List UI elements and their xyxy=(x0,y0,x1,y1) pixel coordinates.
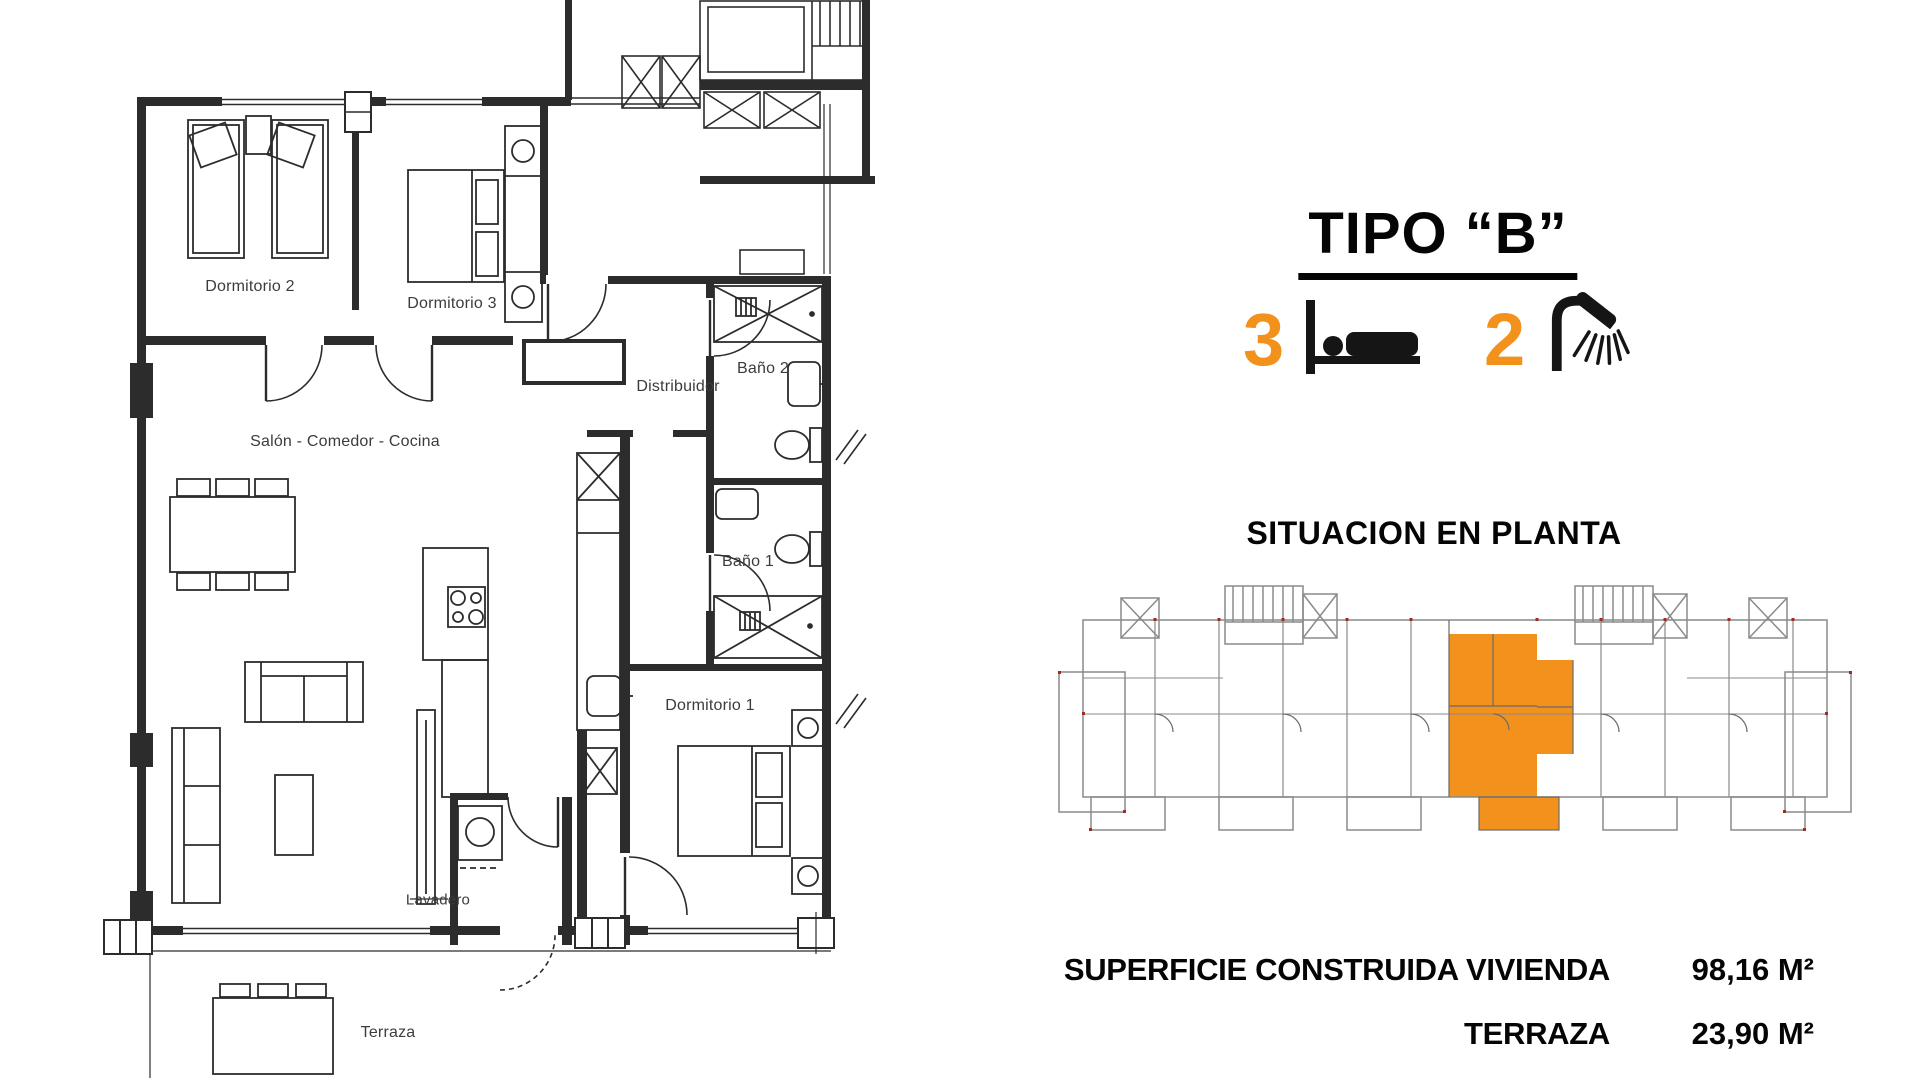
bedrooms-count: 3 xyxy=(1243,303,1284,377)
area-value: 98,16 M² xyxy=(1692,952,1814,988)
area-label: SUPERFICIE CONSTRUIDA VIVIENDA xyxy=(1064,952,1610,988)
floor-plan: Dormitorio 2 Dormitorio 3 Distribuidor B… xyxy=(0,0,960,1080)
situation-plan xyxy=(1055,582,1855,840)
room-label-bano-2: Baño 2 xyxy=(737,360,789,378)
floor-plan-drawing xyxy=(0,0,960,1080)
room-label-distribuidor: Distribuidor xyxy=(636,378,719,396)
info-panel: TIPO “B” 3 2 xyxy=(960,0,1920,1080)
room-label-dormitorio-2: Dormitorio 2 xyxy=(205,278,295,296)
bed-icon xyxy=(1306,300,1420,374)
room-label-terraza: Terraza xyxy=(361,1024,416,1042)
shower-icon xyxy=(1548,288,1630,372)
area-row-terraza: TERRAZA 23,90 M² xyxy=(960,1016,1920,1056)
area-value: 23,90 M² xyxy=(1692,1016,1814,1052)
situation-heading: SITUACION EN PLANTA xyxy=(1246,515,1621,552)
plan-type-title: TIPO “B” xyxy=(1298,200,1577,280)
room-label-dormitorio-3: Dormitorio 3 xyxy=(407,295,497,313)
room-label-dormitorio-1: Dormitorio 1 xyxy=(665,697,755,715)
area-row-vivienda: SUPERFICIE CONSTRUIDA VIVIENDA 98,16 M² xyxy=(960,952,1920,992)
plan-sheet: Dormitorio 2 Dormitorio 3 Distribuidor B… xyxy=(0,0,1920,1080)
room-label-bano-1: Baño 1 xyxy=(722,553,774,571)
walls xyxy=(130,0,875,947)
area-label: TERRAZA xyxy=(1464,1016,1610,1052)
bathrooms-count: 2 xyxy=(1484,303,1525,377)
highlighted-unit xyxy=(1449,634,1573,830)
room-label-lavadero: Lavadero xyxy=(406,892,470,909)
room-label-salon-comedor-cocina: Salón - Comedor - Cocina xyxy=(250,433,440,451)
